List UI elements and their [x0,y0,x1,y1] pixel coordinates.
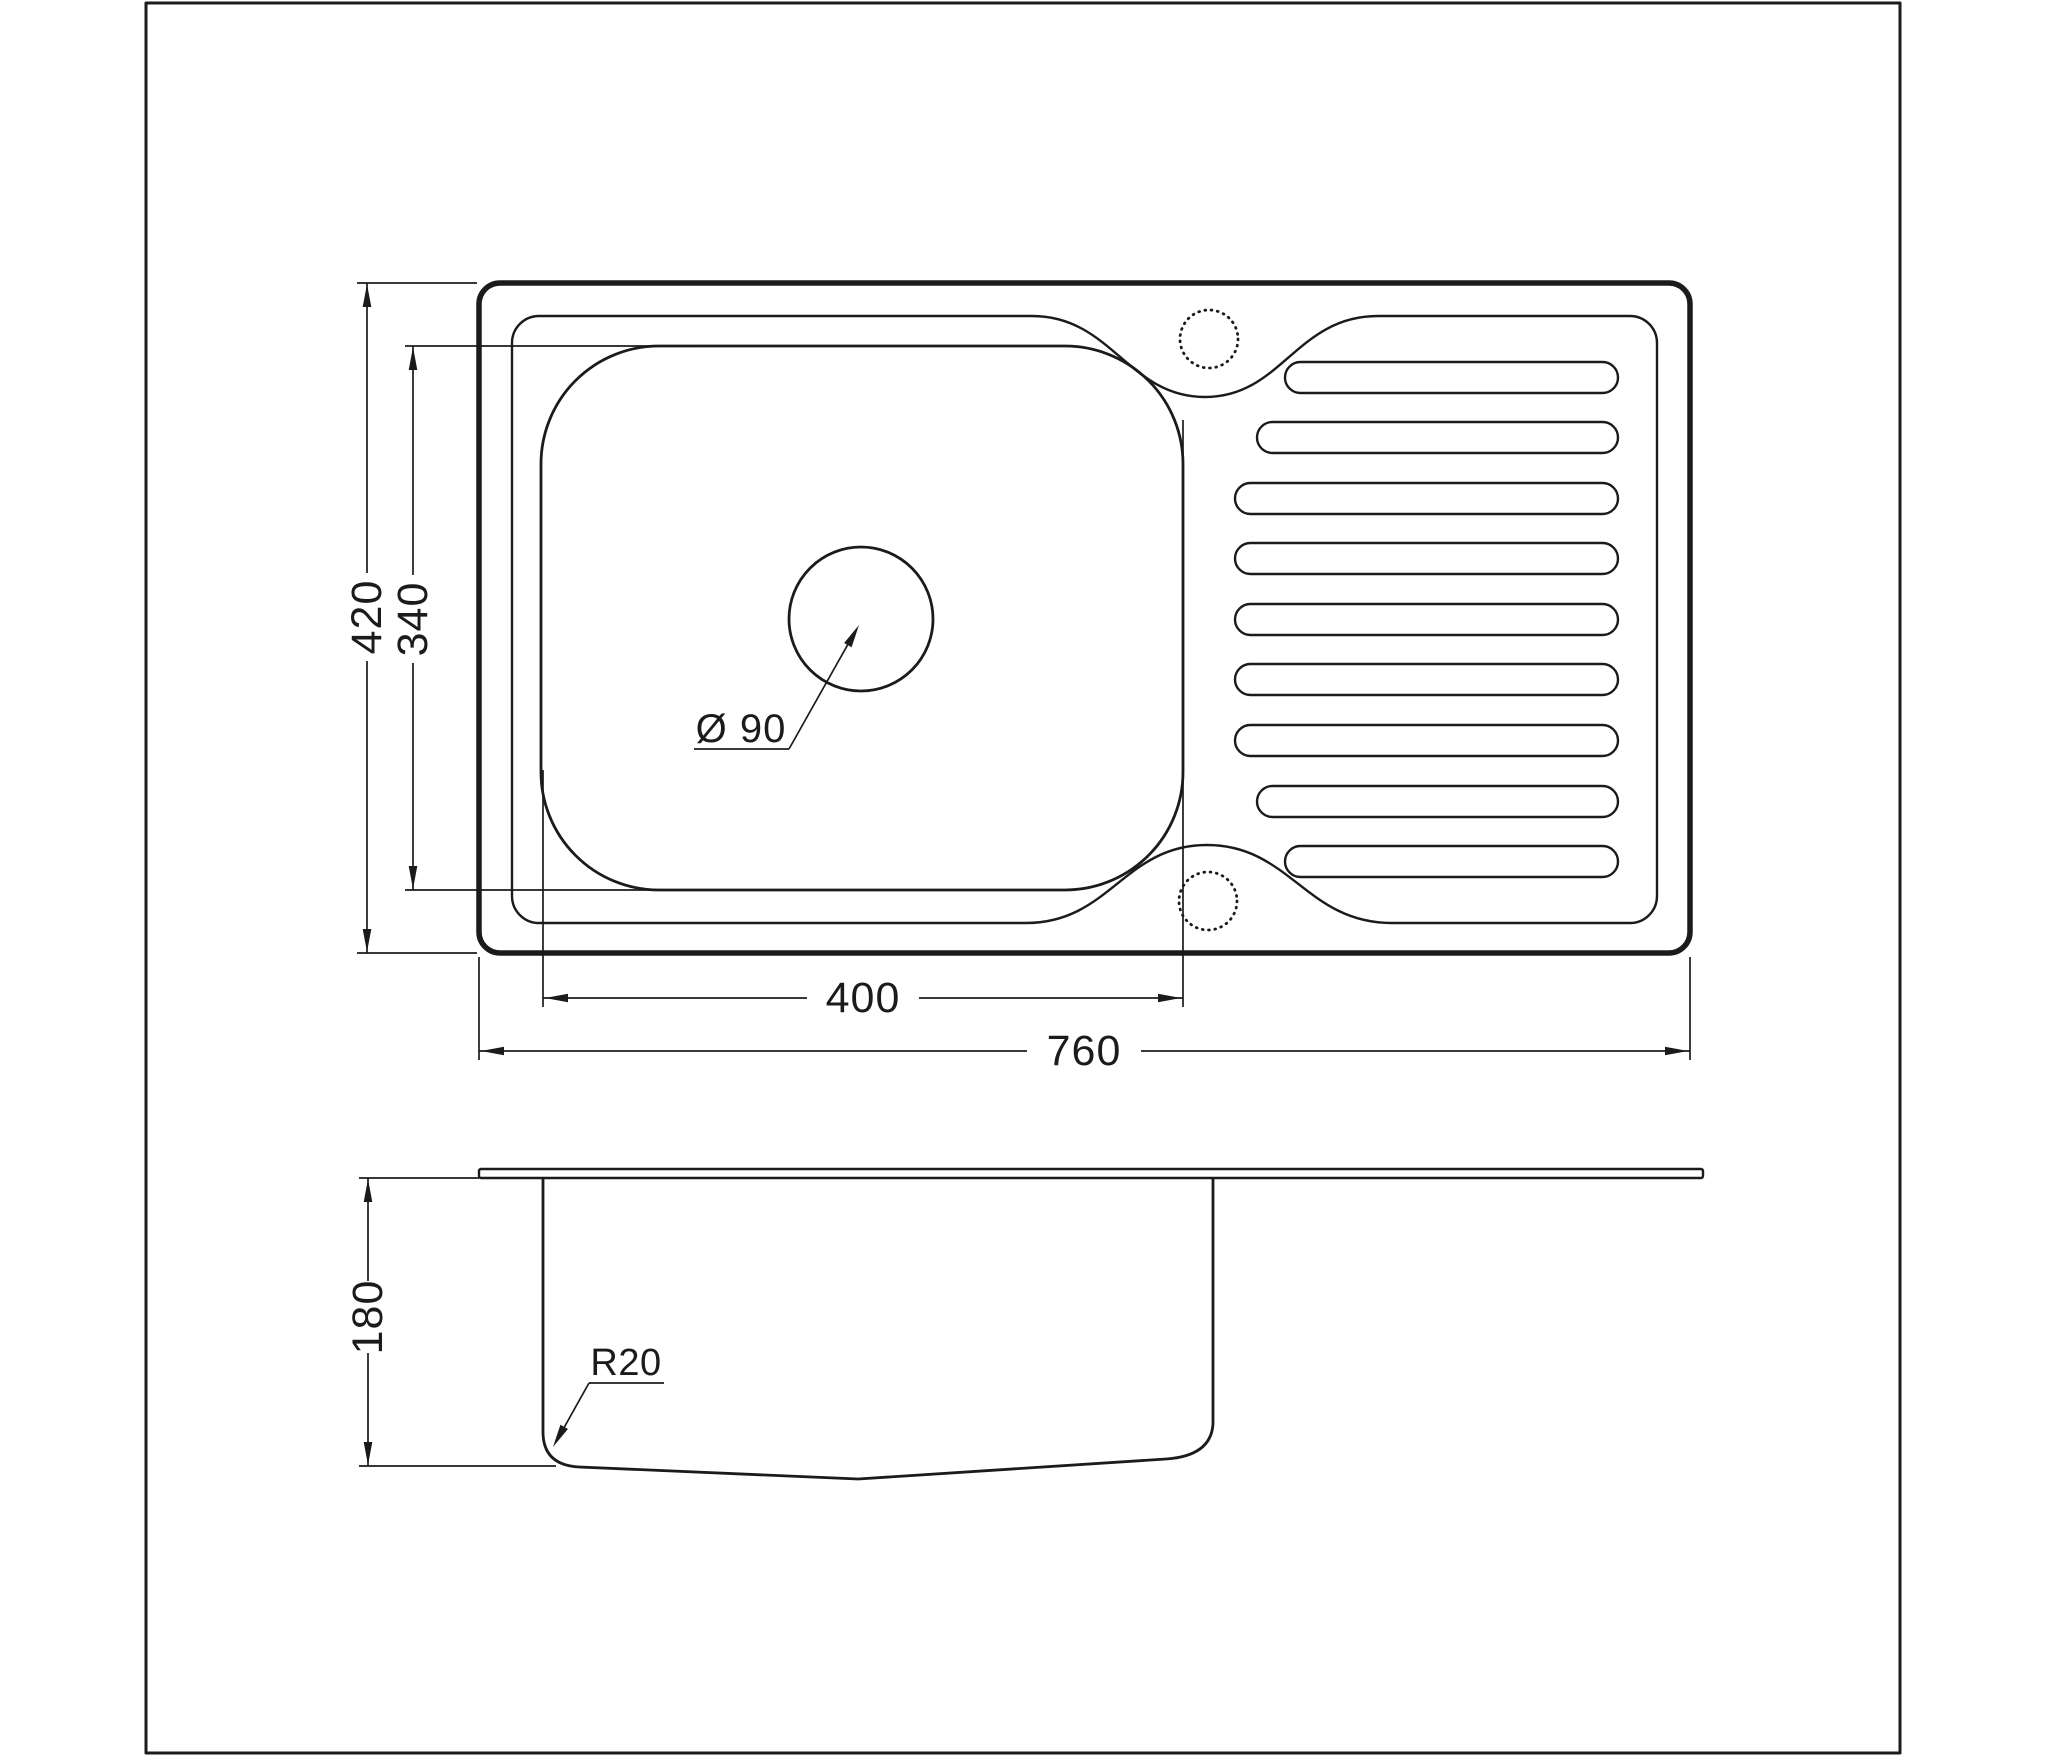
arrowhead-icon [364,1442,373,1465]
drainboard-slot [1235,725,1618,756]
dim-label-180: 180 [344,1280,392,1355]
drainboard-slot [1235,664,1618,695]
sink-side-view [479,1169,1703,1479]
arrowhead-icon [481,1047,504,1056]
dimension-bowl-width: 400 [543,420,1183,1022]
leader-corner-radius: R20 [549,1342,664,1449]
drainboard-slot [1257,422,1618,453]
arrowhead-icon [363,929,372,952]
bowl-section-outline [543,1178,1213,1479]
drainboard [1235,362,1618,877]
drainboard-slot [1285,846,1618,877]
sink-rim-line [512,316,1657,923]
drainboard-slot [1235,483,1618,514]
dimension-total-width: 760 [479,957,1690,1075]
dimension-bowl-height: 180 [344,1178,556,1466]
tap-hole-bottom [1179,872,1237,930]
dim-label-r20: R20 [590,1342,661,1384]
dim-label-420: 420 [343,580,391,655]
sink-bowl-outline [541,346,1183,890]
flange-section [479,1169,1703,1178]
arrowhead-icon [363,284,372,307]
dim-label-340: 340 [389,582,437,657]
drainboard-slot [1235,543,1618,574]
arrowhead-icon [545,994,568,1003]
drainboard-slot [1257,786,1618,817]
tap-hole-top [1180,310,1238,368]
drain-hole [789,547,933,691]
arrowhead-icon [409,866,418,889]
drainboard-slot [1235,604,1618,635]
page-border [146,3,1900,1753]
sink-top-view [479,283,1690,953]
dim-label-760: 760 [1047,1027,1122,1075]
arrowhead-icon [844,623,863,647]
dim-label-400: 400 [826,974,901,1022]
sink-outer-edge [479,283,1690,953]
drainboard-slot [1285,362,1618,393]
arrowhead-icon [549,1425,568,1449]
arrowhead-icon [364,1179,373,1202]
arrowhead-icon [409,347,418,370]
dimension-bowl-depth: 340 [389,346,700,890]
dim-label-drain: Ø 90 [696,707,787,751]
drawing-canvas: 420 340 400 760 Ø 90 [0,0,2048,1757]
arrowhead-icon [1158,994,1181,1003]
arrowhead-icon [1665,1047,1688,1056]
